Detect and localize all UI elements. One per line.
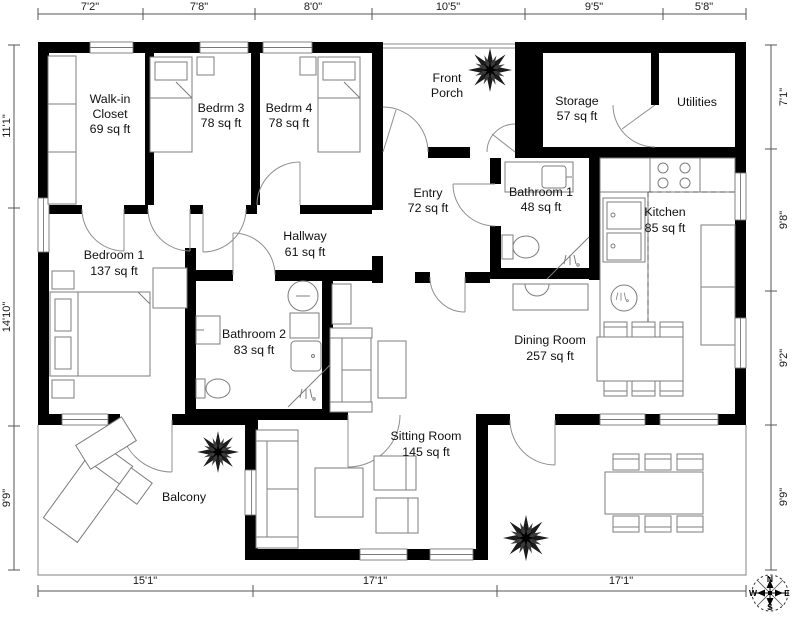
closet-shelves (48, 56, 76, 204)
door-bedrm-3 (203, 209, 246, 252)
patio-table (605, 472, 703, 514)
room-label-balcony: Balcony (162, 490, 207, 504)
dim-right-3: 9'2" (778, 349, 790, 367)
toilet (502, 235, 539, 259)
dim-right-1: 7'1" (778, 88, 790, 106)
sink (291, 341, 321, 371)
dim-right-4: 9'9" (778, 488, 790, 506)
door-front (383, 107, 428, 152)
window (90, 42, 133, 53)
compass-west-label: W (749, 588, 758, 598)
window (263, 42, 312, 53)
console-desk (513, 284, 588, 310)
room-label-bedroom-1: Bedroom 1137 sq ft (84, 248, 145, 278)
bed-single (150, 57, 192, 152)
loveseat (330, 328, 372, 412)
sofa (256, 430, 298, 548)
nightstand (52, 271, 74, 289)
nightstand (52, 380, 74, 398)
door-porch-entry (487, 124, 515, 152)
window (735, 173, 746, 220)
dim-top-4: 10'5" (436, 1, 460, 13)
plant-icon (503, 515, 549, 561)
room-label-dining-room: Dining Room257 sq ft (514, 333, 586, 363)
room-label-front-porch: FrontPorch (431, 71, 463, 100)
room-label-utilities: Utilities (677, 95, 717, 109)
dim-left-1: 11'1" (1, 114, 13, 138)
patio-set (605, 454, 703, 532)
window (430, 549, 473, 560)
stove (650, 158, 700, 192)
bathroom1-fixtures (502, 162, 589, 279)
window (38, 198, 49, 252)
window (200, 42, 248, 53)
door-bathroom-2 (233, 233, 275, 275)
room-label-storage: Storage57 sq ft (555, 94, 599, 123)
nightstand (300, 57, 316, 75)
dim-top-3: 8'0" (304, 1, 322, 13)
dim-top-6: 5'8" (695, 1, 713, 13)
door-utilities (613, 105, 655, 147)
dim-top-1: 7'2" (81, 1, 99, 13)
dining-table (597, 337, 683, 381)
dim-bottom-2: 17'1" (363, 575, 387, 587)
floor-plan-page: 7'2" 7'8" 8'0" 10'5" 9'5" 5'8" 15'1" 17'… (0, 0, 800, 619)
door-bathroom-1 (453, 184, 495, 226)
compass-east-label: E (784, 588, 790, 598)
door-bedroom-1 (148, 209, 190, 251)
window (660, 414, 718, 425)
room-label-entry: Entry72 sq ft (408, 186, 449, 215)
side-table (378, 341, 406, 398)
toilet (196, 379, 230, 398)
room-label-bathroom-1: Bathroom 148 sq ft (509, 185, 573, 214)
door-entry-living (430, 277, 465, 312)
bed-double (50, 292, 150, 376)
plant-icon (468, 48, 512, 92)
room-label-bathroom-2: Bathroom 283 sq ft (222, 327, 286, 357)
room-label-sitting-room: Sitting Room145 sq ft (391, 429, 462, 459)
dresser (153, 268, 187, 308)
dim-right-2: 9'8" (778, 211, 790, 229)
armchair (376, 498, 418, 533)
dining-set (597, 322, 683, 396)
dim-left-3: 9'9" (1, 489, 13, 507)
fridge (701, 225, 735, 287)
plant-icon (197, 431, 239, 473)
compass-rose: N S W E (749, 574, 790, 612)
dim-top-5: 9'5" (585, 1, 603, 13)
armchair (374, 456, 416, 490)
dim-bottom-1: 15'1" (133, 575, 157, 587)
dim-top-2: 7'8" (190, 1, 208, 13)
dim-left-2: 14'10" (1, 302, 13, 333)
coffee-table (315, 468, 363, 517)
door-closet (82, 209, 124, 251)
vanity (290, 313, 319, 338)
room-label-walk-in-closet: Walk-inCloset69 sq ft (90, 92, 131, 136)
window (735, 318, 746, 368)
room-label-hallway: Hallway61 sq ft (283, 229, 327, 259)
window (62, 414, 108, 425)
cabinet (701, 287, 735, 345)
room-label-bedrm-3: Bedrm 378 sq ft (198, 101, 245, 130)
window (360, 549, 407, 560)
floor-plan-canvas: 7'2" 7'8" 8'0" 10'5" 9'5" 5'8" 15'1" 17'… (0, 0, 800, 619)
door-bedrm-4 (257, 162, 300, 205)
door-patio (510, 420, 555, 465)
room-label-bedrm-4: Bedrm 478 sq ft (266, 101, 313, 130)
compass-north-label: N (767, 574, 773, 584)
bed-single (318, 57, 360, 152)
nightstand (197, 57, 214, 75)
dishwasher (611, 285, 637, 311)
compass-south-label: S (767, 602, 773, 612)
room-label-kitchen: Kitchen85 sq ft (644, 205, 686, 235)
window (600, 414, 645, 425)
bookcase (332, 284, 351, 324)
dim-bottom-3: 17'1" (609, 575, 633, 587)
